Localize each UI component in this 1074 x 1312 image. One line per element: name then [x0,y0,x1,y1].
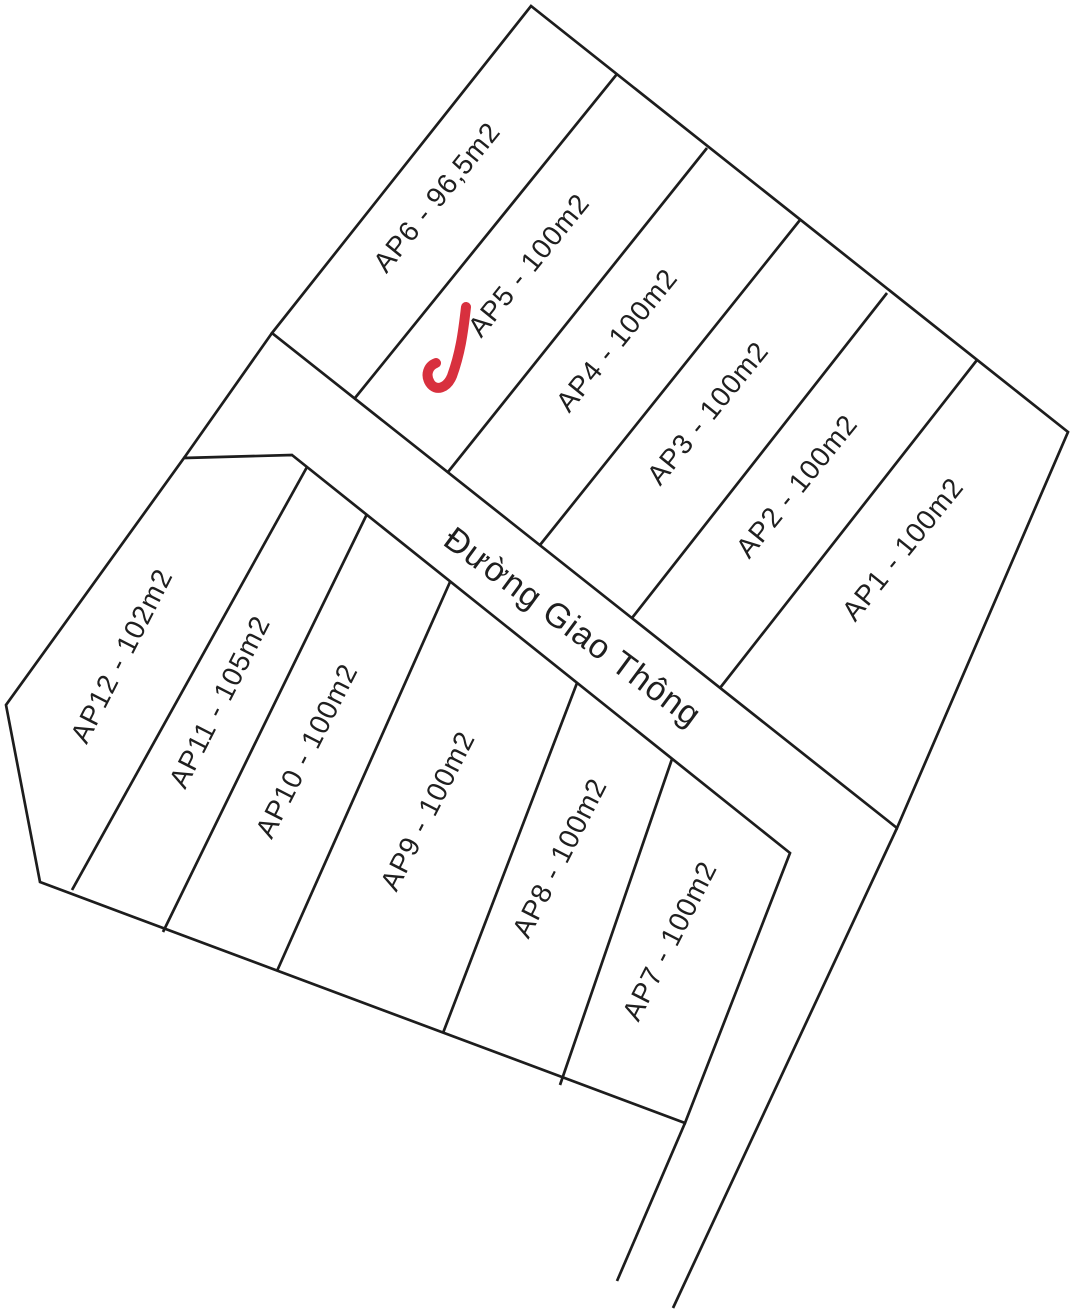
plot-label-ap2: AP2 - 100m2 [730,408,864,563]
plot-label-ap6: AP6 - 96,5m2 [367,116,506,278]
plot-label-ap12: AP12 - 102m2 [64,564,178,748]
plot-label-ap9: AP9 - 100m2 [374,726,481,895]
plot-label-ap4: AP4 - 100m2 [550,262,684,417]
plot-label-ap8: AP8 - 100m2 [506,773,613,942]
plot-label-ap5: AP5 - 100m2 [462,187,596,342]
check-icon [428,307,466,388]
plot-label-ap7: AP7 - 100m2 [616,856,723,1025]
plot-label-ap3: AP3 - 100m2 [641,335,775,490]
road-name-label: Đường Giao Thông [437,520,709,735]
plot-label-ap11: AP11 - 105m2 [163,610,276,792]
plot-label-ap1: AP1 - 100m2 [836,471,970,626]
south-block-outline [6,455,790,1123]
corridor-left-edge [617,1123,685,1281]
road-west-endcap [184,333,272,458]
plot-plan-svg: AP6 - 96,5m2 AP5 - 100m2 AP4 - 100m2 AP3… [0,0,1074,1312]
land-plot-map: AP6 - 96,5m2 AP5 - 100m2 AP4 - 100m2 AP3… [0,0,1074,1312]
